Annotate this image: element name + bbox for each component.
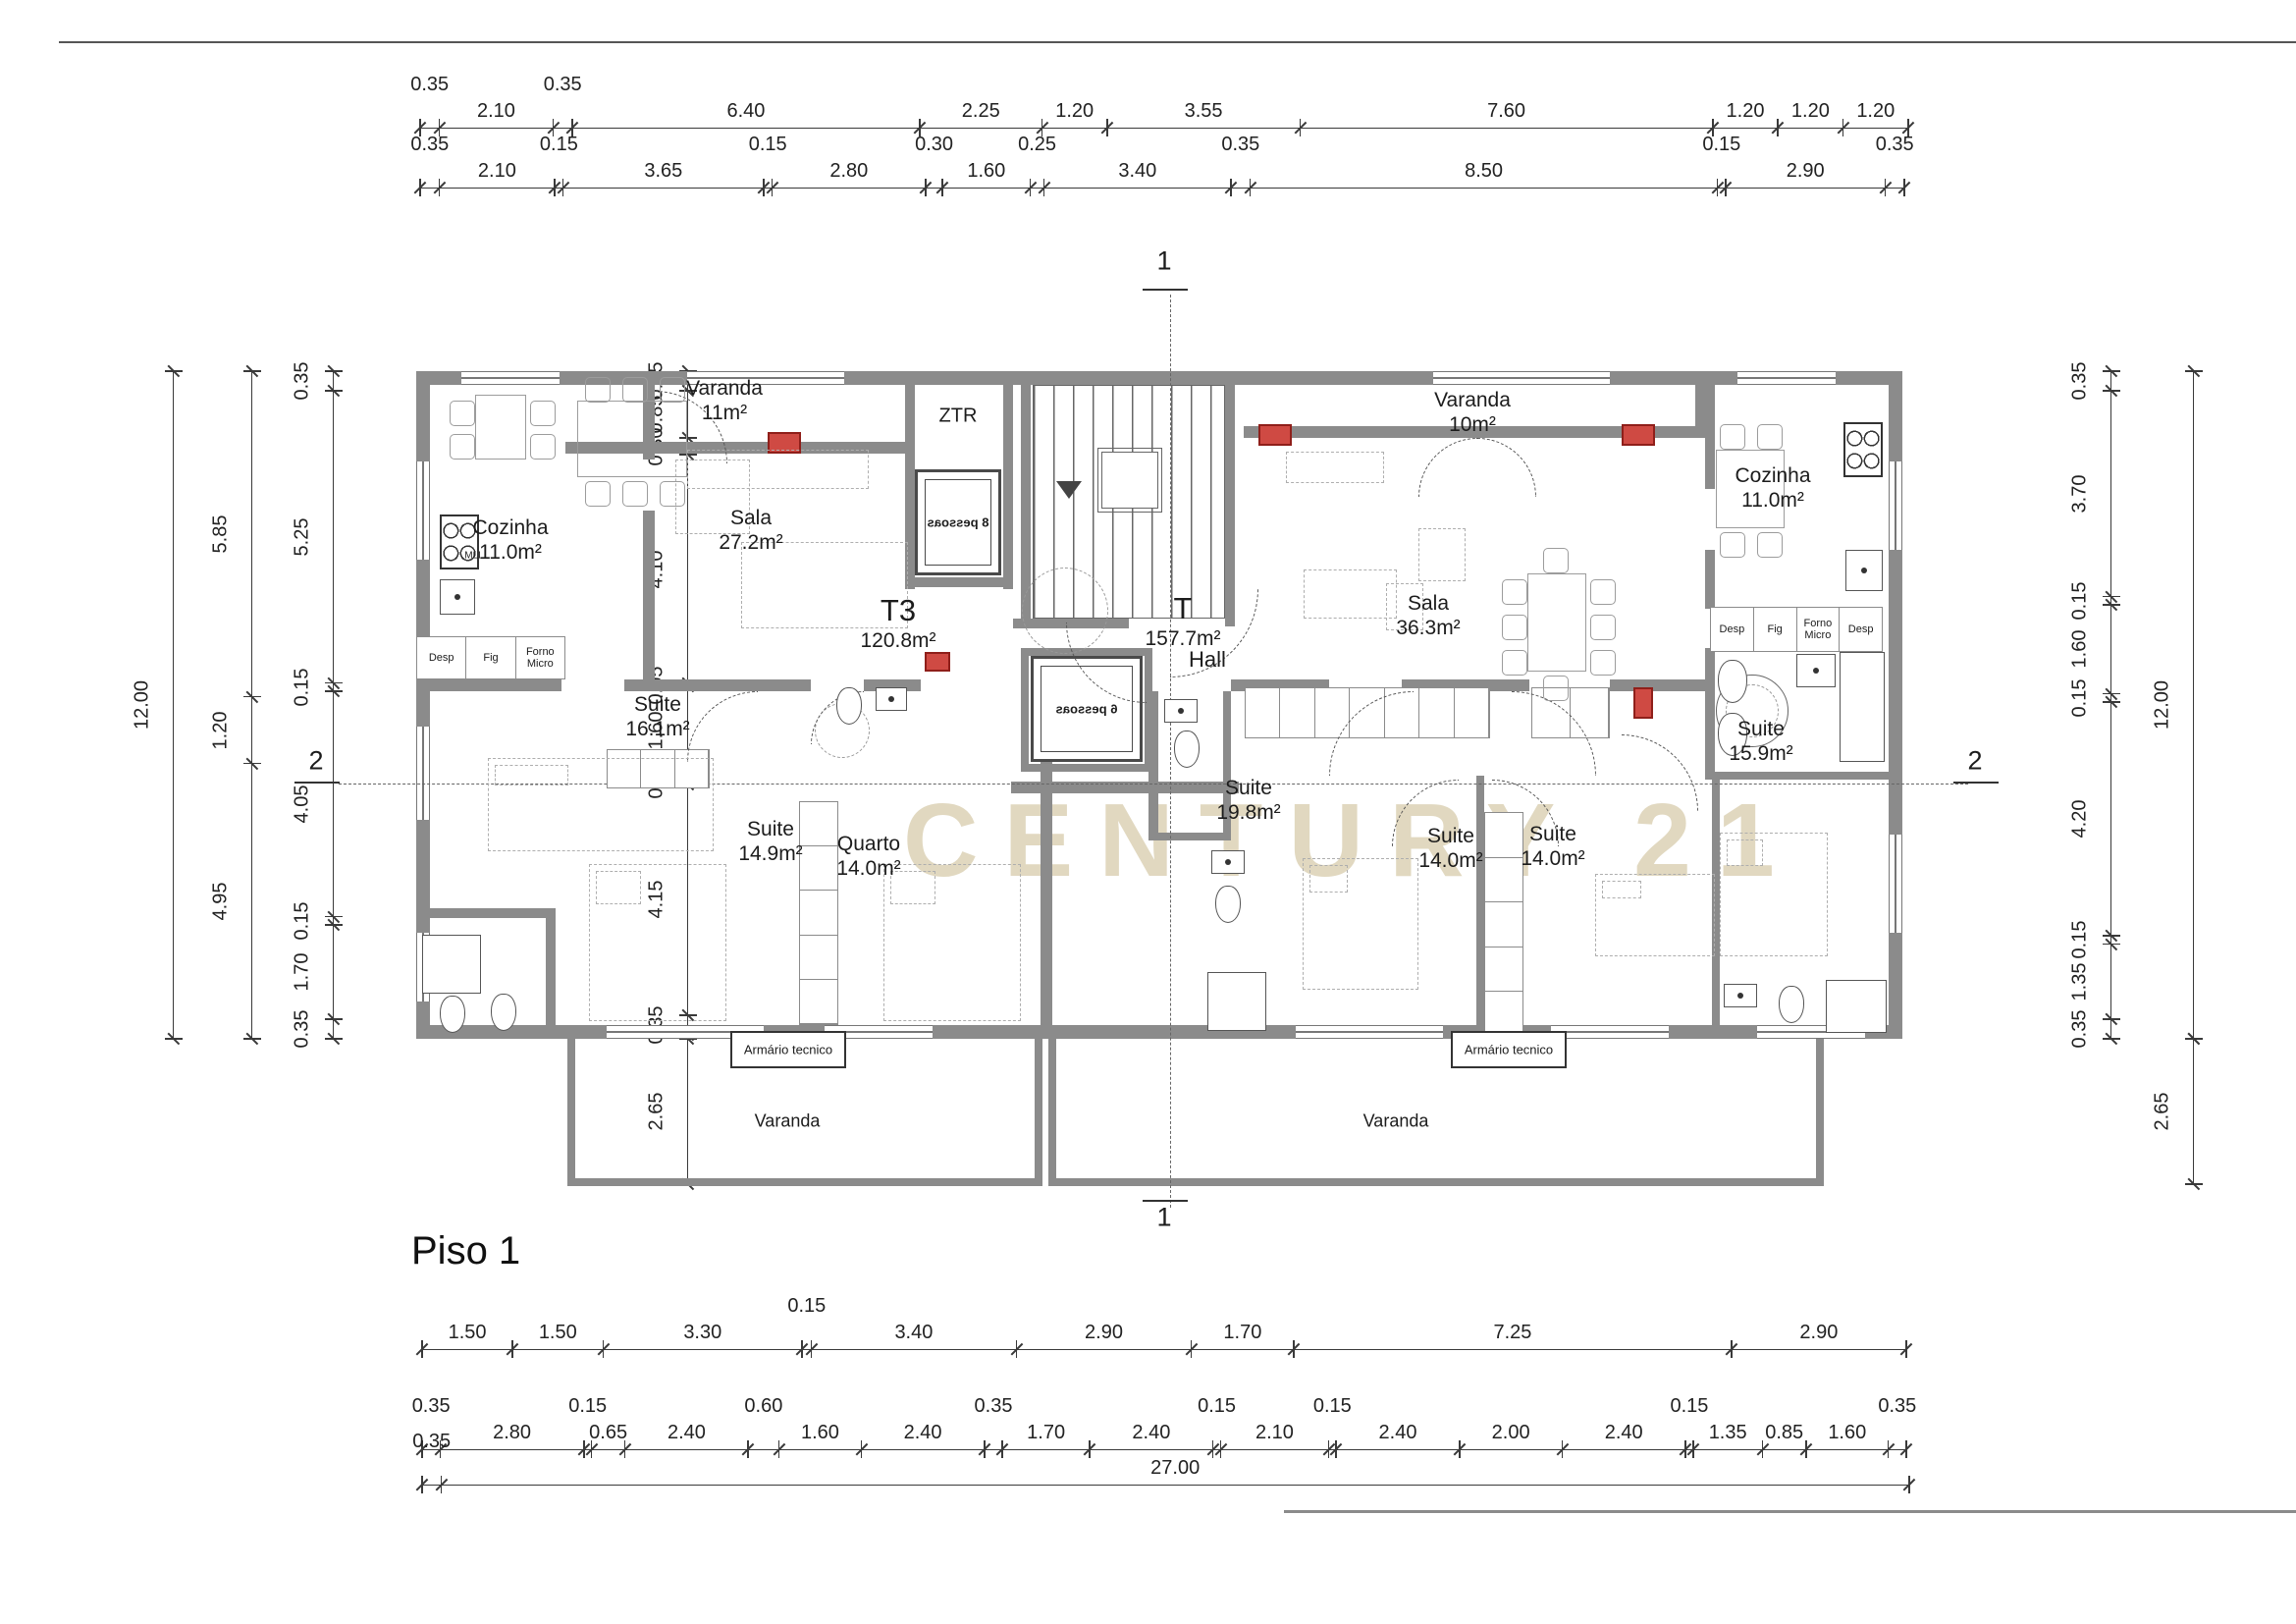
dimension-value: 0.65: [589, 1422, 627, 1444]
wall-segment: [416, 679, 561, 691]
sheet-bottom-border: [1284, 1510, 2296, 1513]
chair: [1590, 579, 1616, 605]
dimension-chain-right_inner: 0.353.700.151.600.154.200.151.350.35: [2110, 371, 2111, 1039]
dimension-value: 1.35: [1709, 1422, 1747, 1444]
closet-cell: [1280, 688, 1314, 737]
wall-segment: [416, 908, 554, 918]
dimension-value: 0.35: [410, 134, 449, 156]
dimension-value: 1.20: [1856, 100, 1895, 123]
sofa: [1304, 569, 1397, 619]
wall-segment: [643, 511, 655, 685]
section-marker: 2: [1967, 746, 1982, 777]
closet-cell: [800, 980, 837, 1024]
dimension-value: 12.00: [2152, 680, 2174, 730]
dimension-value: 2.00: [1492, 1422, 1530, 1444]
toilet: [1215, 886, 1241, 923]
dimension-value: 0.35: [1876, 134, 1914, 156]
closet-cell: [800, 846, 837, 891]
wall-segment: [546, 908, 556, 1037]
room-label-suite_161: Suite16.1m²: [625, 692, 689, 741]
elevator-capacity-label: 6 pessoas: [1056, 702, 1118, 717]
dimension-chain-right_total: 12.00: [2193, 371, 2194, 1039]
dimension-value: 2.90: [1085, 1322, 1123, 1344]
closet-cell: [1419, 688, 1454, 737]
closet-cell: [1246, 688, 1280, 737]
dimension-value: 0.15: [292, 668, 314, 706]
room-area: 36.3m²: [1396, 616, 1460, 640]
room-label-sala_right: Sala36.3m²: [1396, 591, 1460, 640]
dimension-chain-right_balcony: 2.65: [2193, 1039, 2194, 1184]
toilet: [440, 996, 465, 1033]
chair: [1757, 532, 1783, 558]
dimension-value: 1.60: [967, 160, 1005, 183]
dimension-value: 2.25: [962, 100, 1000, 123]
label-hall: Hall: [1189, 647, 1226, 673]
wall-segment: [1476, 776, 1484, 1039]
chair: [1543, 676, 1569, 701]
window: [1889, 461, 1902, 550]
chair: [1502, 579, 1527, 605]
cabinet-cell-label: Desp: [1840, 608, 1882, 651]
dimension-value: 0.35: [292, 1010, 314, 1049]
dimension-value: 0.15: [568, 1395, 607, 1418]
room-name: T3: [860, 592, 935, 628]
toilet: [1174, 731, 1200, 768]
toilet: [1779, 986, 1804, 1023]
room-label-cozinha_left: Cozinha11.0m²: [472, 515, 548, 565]
dimension-value: 1.20: [1055, 100, 1094, 123]
closet-cell: [800, 891, 837, 935]
vanity: [1796, 654, 1836, 687]
wall-segment: [1021, 648, 1029, 772]
window: [1433, 371, 1610, 385]
wall-segment: [1148, 691, 1158, 837]
bidet: [491, 994, 516, 1031]
dimension-chain-bottom_row_1: 1.501.503.300.153.402.901.707.252.90: [422, 1349, 1906, 1350]
dimension-value: 4.05: [292, 785, 314, 823]
dimension-chain-left_total: 12.00: [173, 371, 174, 1039]
room-area: 11.0m²: [472, 540, 548, 565]
room-label-varanda_tl: Varanda11m²: [686, 376, 763, 425]
chair: [585, 481, 611, 507]
room-area: 120.8m²: [860, 628, 935, 653]
window: [1296, 1025, 1443, 1039]
shower: [422, 935, 481, 994]
sink: [1211, 850, 1245, 874]
section-marker-tick: [294, 782, 340, 784]
dimension-value: 1.20: [1791, 100, 1830, 123]
room-name: Suite: [625, 692, 689, 717]
dimension-value: 3.30: [683, 1322, 721, 1344]
dimension-chain-bottom_row_3: 0.3527.00: [422, 1485, 1909, 1486]
room-name: Suite: [1418, 824, 1482, 848]
dimension-value: 3.55: [1185, 100, 1223, 123]
room-label-suite_159: Suite15.9m²: [1729, 717, 1792, 766]
dimension-value: 2.65: [646, 1093, 668, 1131]
room-label-suite_140b: Suite14.0m²: [1521, 822, 1584, 871]
sink: [1164, 699, 1198, 723]
window: [416, 461, 430, 560]
dimension-value: 0.15: [1670, 1395, 1708, 1418]
dimension-value: 0.35: [412, 1431, 451, 1453]
dimension-value: 3.40: [1118, 160, 1156, 183]
dimension-value: 2.40: [1605, 1422, 1643, 1444]
dimension-value: 1.35: [2069, 962, 2092, 1001]
dimension-value: 2.10: [477, 100, 515, 123]
wall-segment: [1148, 833, 1231, 840]
closet-cell: [1485, 947, 1522, 993]
wall-segment: [1003, 371, 1013, 589]
dimension-value: 1.60: [801, 1422, 839, 1444]
elevator-capacity-label: 8 pessoas: [928, 515, 989, 530]
dimension-chain-left_inner: 0.355.250.154.050.151.700.35: [333, 371, 334, 1039]
wall-segment: [1705, 648, 1715, 776]
dimension-value: 2.40: [1379, 1422, 1417, 1444]
dimension-value: 0.35: [975, 1395, 1013, 1418]
chair: [660, 481, 685, 507]
bed: [1720, 833, 1828, 956]
dimension-value: 0.15: [2069, 581, 2092, 620]
window: [1889, 835, 1902, 933]
closet-cell: [1485, 858, 1522, 903]
label-ztr: ZTR: [939, 406, 978, 428]
dimension-value: 1.60: [1828, 1422, 1866, 1444]
bed: [488, 758, 714, 851]
section-marker-tick: [1953, 782, 1999, 784]
label-mll: MLL: [464, 551, 483, 562]
closet-cell: [800, 802, 837, 846]
cabinet-cell-label: Fig: [1754, 608, 1797, 651]
room-label-varanda_tr: Varanda10m²: [1434, 388, 1511, 437]
bed: [589, 864, 726, 1021]
chair: [1590, 650, 1616, 676]
room-label-t3: T3120.8m²: [860, 592, 935, 653]
wall-segment: [1610, 679, 1705, 691]
room-area: 15.9m²: [1729, 741, 1792, 766]
balcony-wall: [1048, 1039, 1056, 1186]
wall-segment: [624, 679, 811, 691]
chair: [530, 401, 556, 426]
stove-right: [1843, 422, 1883, 477]
room-name: Suite: [1521, 822, 1584, 846]
closet-cell: [1455, 688, 1489, 737]
room-label-suite_198: Suite19.8m²: [1216, 776, 1280, 825]
room-name: Varanda: [686, 376, 763, 401]
dimension-value: 0.15: [1702, 134, 1740, 156]
chair: [1543, 548, 1569, 573]
dimension-value: 4.20: [2069, 800, 2092, 839]
dimension-value: 8.50: [1465, 160, 1503, 183]
balcony-wall: [1816, 1039, 1824, 1186]
sink-right: [1845, 550, 1883, 591]
dimension-chain-bottom_row_2: 0.352.800.150.652.400.601.602.400.351.70…: [422, 1449, 1906, 1450]
dimension-value: 0.25: [1018, 134, 1056, 156]
room-name: Cozinha: [1735, 463, 1810, 488]
section-marker: 2: [308, 746, 323, 777]
dining-table: [1527, 573, 1586, 672]
dimension-value: 0.35: [292, 361, 314, 400]
dimension-value: 0.35: [544, 74, 582, 96]
bed: [1303, 858, 1418, 990]
section-marker: 1: [1156, 1203, 1171, 1233]
dimension-value: 0.15: [2069, 678, 2092, 717]
floor-title: Piso 1: [411, 1229, 520, 1273]
room-area: 11.0m²: [1735, 488, 1810, 513]
chair: [450, 434, 475, 460]
chair: [1590, 615, 1616, 640]
wall-segment: [1705, 772, 1890, 780]
dimension-value: 0.35: [1878, 1395, 1916, 1418]
dimension-value: 5.25: [292, 517, 314, 556]
room-label-sala_left: Sala27.2m²: [719, 506, 782, 555]
dimension-value: 1.20: [210, 711, 233, 749]
dimension-value: 1.70: [1027, 1422, 1065, 1444]
floor-plan-sheet: CENTURY 21 Piso 1 0.352.100.356.402.251.…: [0, 0, 2296, 1624]
chair: [1502, 615, 1527, 640]
chair: [660, 377, 685, 403]
chair: [622, 377, 648, 403]
dimension-chain-left_balcony: 2.65: [687, 1039, 688, 1184]
cabinet-cell-label: Forno Micro: [1797, 608, 1841, 651]
dimension-value: 0.15: [540, 134, 578, 156]
balcony-wall: [567, 1178, 1042, 1186]
stair-direction-arrow: [1056, 481, 1082, 499]
room-name: Cozinha: [472, 515, 548, 540]
label-varanda_bl: Varanda: [755, 1111, 821, 1132]
wall-segment: [1705, 550, 1715, 609]
door-arc: [1418, 438, 1477, 497]
label-armario_right: Armário tecnico: [1465, 1043, 1553, 1057]
room-area: 19.8m²: [1216, 800, 1280, 825]
dimension-value: 1.50: [539, 1322, 577, 1344]
chair: [622, 481, 648, 507]
room-name: Sala: [1396, 591, 1460, 616]
closet: [799, 801, 838, 1025]
door-arc: [1622, 734, 1698, 811]
room-name: T: [1145, 590, 1220, 626]
dimension-value: 0.60: [744, 1395, 782, 1418]
shower: [1826, 980, 1887, 1033]
window: [1737, 371, 1836, 385]
red-wall-marker: [925, 652, 950, 672]
dimension-value: 0.35: [410, 74, 449, 96]
red-wall-marker: [1258, 424, 1292, 446]
dimension-value: 2.10: [478, 160, 516, 183]
dimension-value: 1.70: [292, 953, 314, 992]
dimension-value: 2.80: [493, 1422, 531, 1444]
room-name: Suite: [1216, 776, 1280, 800]
dimension-value: 2.40: [904, 1422, 942, 1444]
kitchen-table: [475, 395, 526, 460]
dimension-value: 2.40: [667, 1422, 706, 1444]
balcony-wall: [1035, 1039, 1042, 1186]
room-label-t4: T157.7m²: [1145, 590, 1220, 651]
armchair: [1418, 528, 1466, 581]
chair: [1720, 532, 1745, 558]
dimension-value: 2.10: [1255, 1422, 1294, 1444]
dimension-value: 27.00: [1150, 1457, 1200, 1480]
shower: [1207, 972, 1266, 1031]
window: [416, 727, 430, 820]
closet-cell: [1485, 902, 1522, 947]
dimension-value: 6.40: [726, 100, 765, 123]
dimension-value: 12.00: [132, 680, 154, 730]
tv-unit: [1286, 452, 1384, 483]
dimension-value: 7.60: [1487, 100, 1525, 123]
dimension-value: 3.40: [894, 1322, 933, 1344]
dimension-value: 2.65: [2152, 1093, 2174, 1131]
room-label-suite_149: Suite14.9m²: [738, 817, 802, 866]
kitchen-cabinet-row: DespFigForno Micro: [416, 636, 565, 679]
room-name: Sala: [719, 506, 782, 530]
section-marker-tick: [1143, 289, 1188, 291]
red-wall-marker: [1633, 687, 1653, 719]
room-label-cozinha_right: Cozinha11.0m²: [1735, 463, 1810, 513]
dimension-value: 0.35: [1221, 134, 1259, 156]
dining-table: [577, 401, 687, 477]
section-line-1: [1170, 295, 1171, 1208]
balcony-wall: [567, 1039, 575, 1186]
kitchen-cabinet-row: DespFigForno MicroDesp: [1710, 607, 1883, 652]
sink-left: [440, 579, 475, 615]
section-marker-tick: [1143, 1200, 1188, 1202]
bed: [1595, 874, 1715, 956]
room-area: 10m²: [1434, 412, 1511, 437]
dimension-value: 2.90: [1787, 160, 1825, 183]
dimension-value: 0.15: [1313, 1395, 1352, 1418]
chair: [1502, 650, 1527, 676]
dimension-value: 0.35: [2069, 361, 2092, 400]
sink: [1724, 984, 1757, 1007]
section-marker: 1: [1156, 246, 1171, 277]
room-area: 14.9m²: [738, 841, 802, 866]
toilet: [1718, 660, 1747, 703]
room-area: 14.0m²: [836, 856, 900, 881]
dimension-value: 3.70: [2069, 474, 2092, 513]
dimension-value: 1.70: [1223, 1322, 1261, 1344]
door-arc: [687, 691, 758, 762]
dimension-value: 0.15: [292, 901, 314, 940]
dimension-value: 2.80: [829, 160, 868, 183]
wall-segment: [1225, 371, 1235, 626]
sheet-top-border: [59, 41, 2296, 43]
door-arc: [1477, 438, 1536, 497]
dimension-value: 1.50: [449, 1322, 487, 1344]
balcony-wall: [1048, 1178, 1824, 1186]
room-area: 14.0m²: [1418, 848, 1482, 873]
cabinet-cell-label: Desp: [1711, 608, 1754, 651]
bed: [883, 864, 1021, 1021]
wall-segment: [1705, 371, 1715, 489]
cabinet-cell-label: Fig: [466, 637, 515, 678]
closet-cell: [800, 936, 837, 980]
cabinet-cell-label: Forno Micro: [516, 637, 564, 678]
dimension-value: 0.85: [1765, 1422, 1803, 1444]
dimension-value: 0.35: [2069, 1010, 2092, 1049]
chair: [450, 401, 475, 426]
chair: [585, 377, 611, 403]
dimension-value: 2.40: [1132, 1422, 1170, 1444]
cabinet-cell-label: Desp: [417, 637, 466, 678]
dimension-value: 0.35: [412, 1395, 451, 1418]
dimension-value: 4.95: [210, 882, 233, 920]
room-label-quarto_140: Quarto14.0m²: [836, 832, 900, 881]
window: [461, 371, 560, 385]
dimension-value: 2.90: [1799, 1322, 1838, 1344]
dimension-value: 1.60: [2069, 630, 2092, 669]
dimension-value: 0.15: [1198, 1395, 1236, 1418]
toilet: [836, 687, 862, 725]
room-area: 14.0m²: [1521, 846, 1584, 871]
room-label-suite_140a: Suite14.0m²: [1418, 824, 1482, 873]
sink: [876, 687, 907, 711]
dimension-value: 0.15: [787, 1295, 826, 1318]
dimension-value: 1.20: [1727, 100, 1765, 123]
room-area: 11m²: [686, 401, 763, 425]
dimension-value: 5.85: [210, 514, 233, 553]
room-area: 16.1m²: [625, 717, 689, 741]
dimension-value: 0.15: [749, 134, 787, 156]
label-varanda_br: Varanda: [1363, 1111, 1429, 1132]
room-name: Varanda: [1434, 388, 1511, 412]
chair: [530, 434, 556, 460]
chair: [1720, 424, 1745, 450]
dimension-value: 7.25: [1493, 1322, 1531, 1344]
dimension-value: 0.15: [2069, 921, 2092, 959]
red-wall-marker: [1622, 424, 1655, 446]
room-name: Suite: [738, 817, 802, 841]
dimension-value: 0.30: [915, 134, 953, 156]
dimension-chain-left_mid: 5.851.204.95: [251, 371, 252, 1039]
room-name: Quarto: [836, 832, 900, 856]
window: [1551, 1025, 1669, 1039]
wall-segment: [909, 577, 1007, 587]
shower: [1840, 652, 1885, 762]
dimension-chain-top_row_1: 0.352.100.356.402.251.203.557.601.201.20…: [420, 128, 1908, 129]
label-armario_left: Armário tecnico: [744, 1043, 832, 1057]
chair: [1757, 424, 1783, 450]
stair-landing: [1101, 452, 1158, 509]
dimension-value: 3.65: [644, 160, 682, 183]
room-area: 27.2m²: [719, 530, 782, 555]
room-name: Suite: [1729, 717, 1792, 741]
dimension-chain-top_row_2: 0.352.100.153.650.152.800.301.600.253.40…: [420, 188, 1904, 189]
